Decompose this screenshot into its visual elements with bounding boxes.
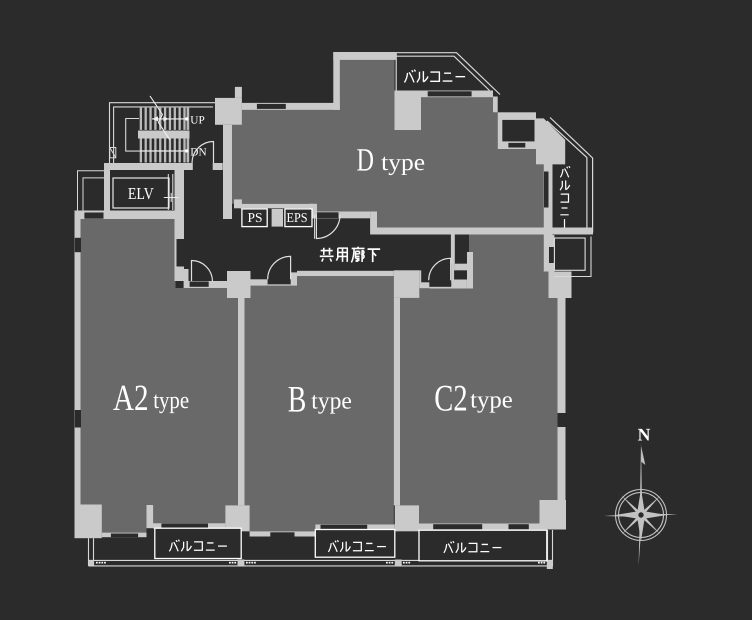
svg-text:UP: UP: [190, 114, 204, 126]
svg-text:PS: PS: [248, 210, 263, 225]
svg-text:C2: C2: [434, 379, 467, 420]
svg-text:ELV: ELV: [128, 184, 154, 203]
svg-text:DN: DN: [190, 146, 206, 158]
svg-text:EPS: EPS: [287, 210, 308, 225]
svg-text:type: type: [153, 388, 189, 414]
svg-text:N: N: [638, 425, 651, 445]
svg-text:D: D: [357, 143, 374, 179]
svg-text:B: B: [288, 380, 307, 421]
svg-text:A2: A2: [113, 378, 149, 419]
svg-text:type: type: [381, 150, 425, 176]
svg-text:type: type: [311, 389, 352, 415]
svg-text:type: type: [470, 388, 513, 414]
